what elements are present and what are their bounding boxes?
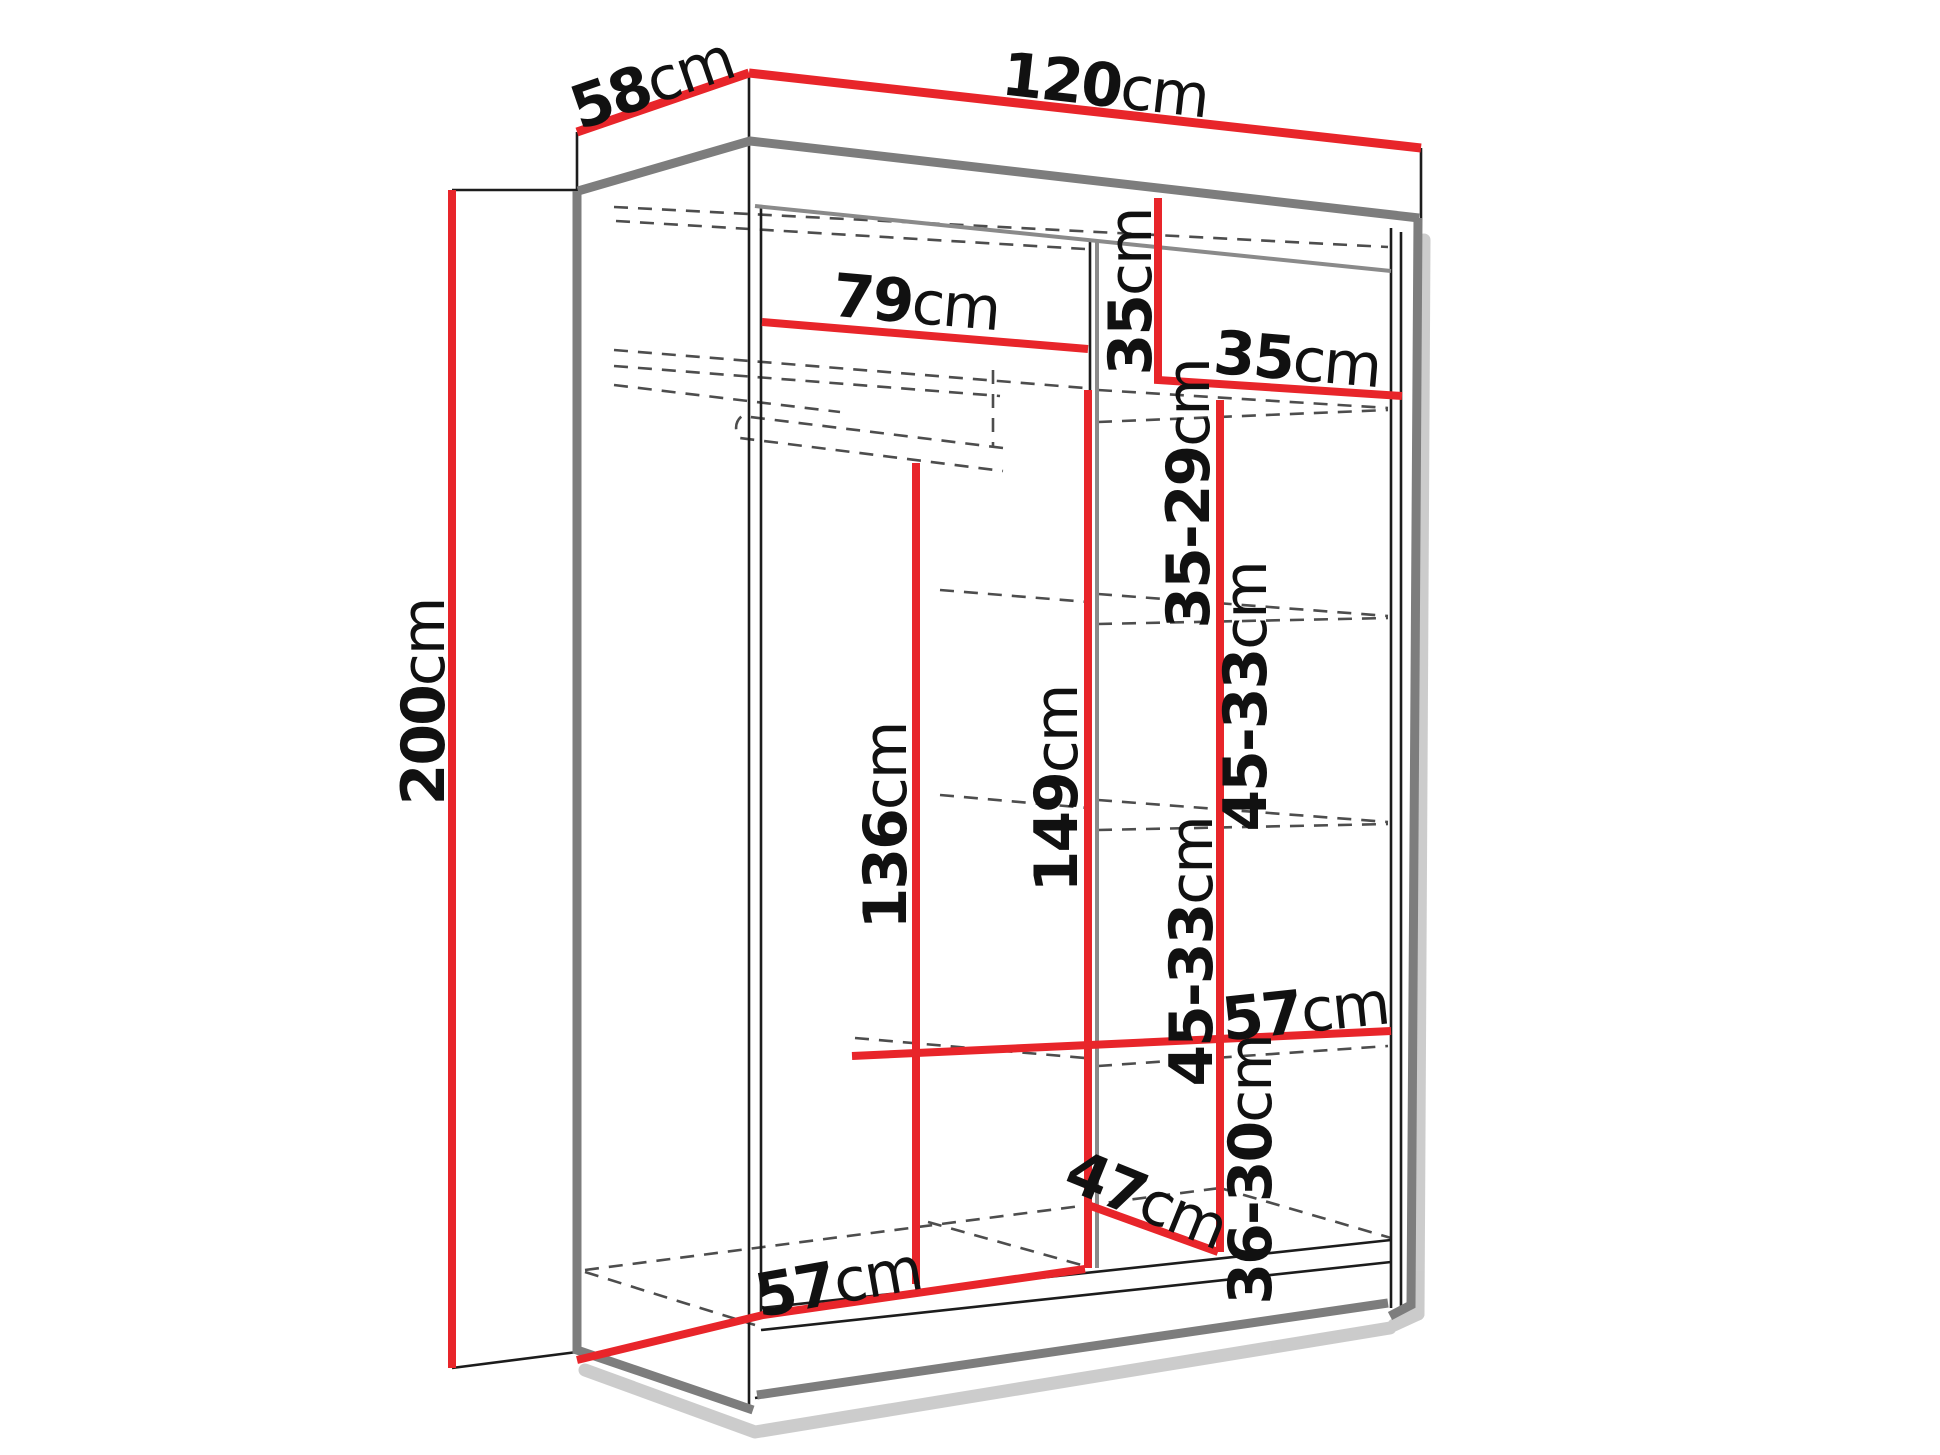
dim-line-57cm-floor (577, 1269, 1085, 1360)
shelf3-edge-2 (1098, 824, 1388, 830)
dim-line-120cm (749, 73, 1421, 148)
floor-left-edge (585, 1272, 755, 1325)
ext-line-200-bottom (452, 1352, 577, 1368)
right-side-edge (1390, 218, 1418, 1316)
ceiling-front-edge (755, 206, 1391, 271)
interior-gray-edges (755, 206, 1391, 1268)
shelf2-back-edge (940, 590, 1088, 602)
shelf2-edge-1 (1098, 594, 1388, 616)
left-top-shelf-edge-1 (614, 350, 1085, 388)
left-side-edges (577, 191, 753, 1410)
dimension-lines (452, 73, 1421, 1368)
ceiling-back-edge-2 (616, 221, 1085, 249)
floor-right-edge (1220, 1188, 1391, 1238)
floor-back-edge (585, 1188, 1220, 1270)
shelf1-edge-2 (1098, 410, 1388, 422)
wardrobe-line-drawing (0, 0, 1940, 1455)
shelf3-back-edge (940, 795, 1088, 808)
dim-line-35cm-top-shelf (1158, 198, 1402, 396)
top-edges (578, 141, 1419, 218)
dim-line-47cm (1088, 1205, 1218, 1252)
floor-divider-edge (928, 1222, 1085, 1266)
shelf3-edge-1 (1098, 800, 1388, 822)
wardrobe-dimension-diagram: 58cm120cm200cm79cm35cm35cm35-29cm45-33cm… (0, 0, 1940, 1455)
hanging-rail (736, 416, 1003, 471)
shelf4-edge (1098, 1046, 1388, 1066)
left-top-shelf-edge-3 (614, 385, 840, 412)
dim-line-79cm (762, 322, 1088, 349)
dim-line-58cm (577, 73, 749, 132)
interior-edges (452, 73, 1421, 1410)
ceiling-back-edge (614, 207, 1388, 247)
hidden-edges (585, 207, 1391, 1325)
wardrobe-outline (577, 141, 1419, 1410)
shelf2-edge-2 (1098, 618, 1388, 624)
